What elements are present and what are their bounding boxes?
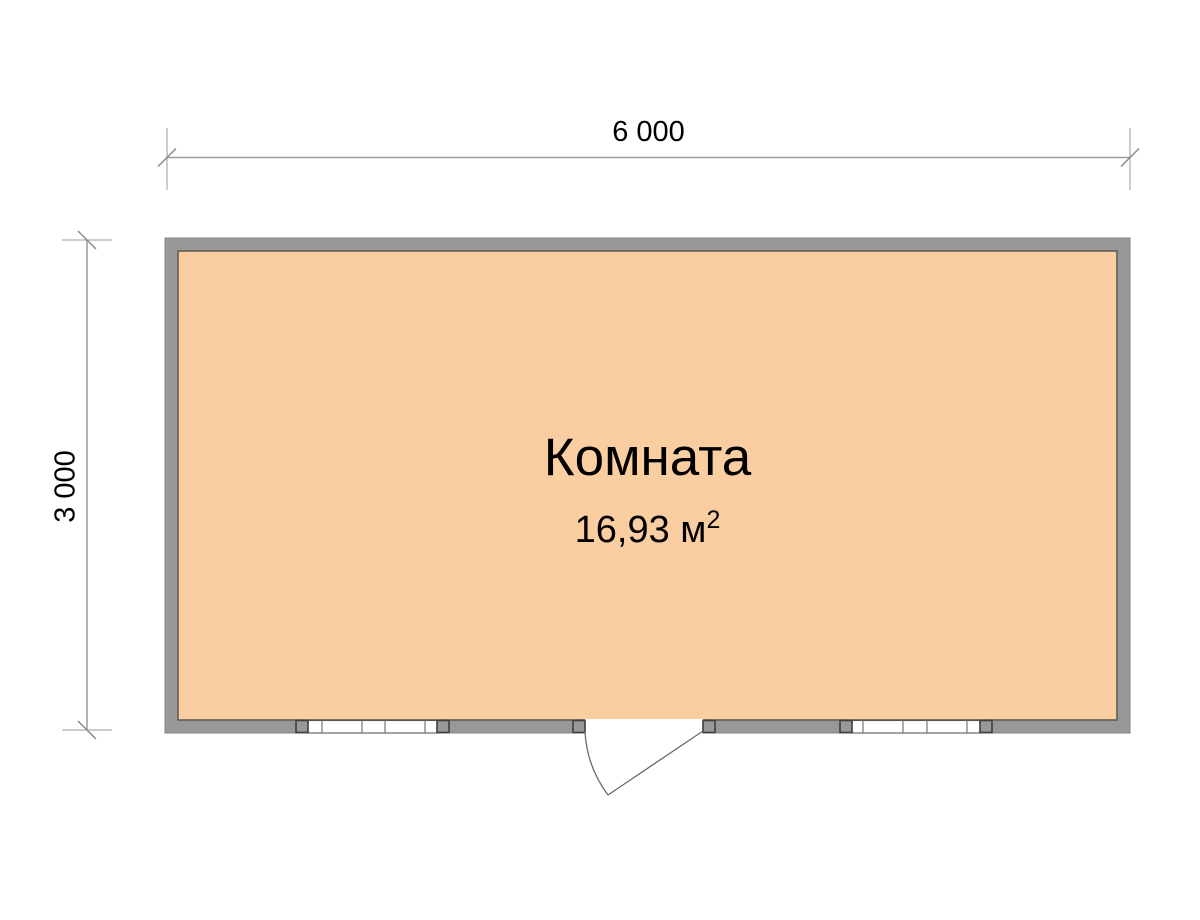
door-leaf (608, 731, 703, 795)
door-jamb (573, 721, 585, 733)
window-left (296, 721, 449, 734)
window-right (840, 721, 992, 734)
floor-plan: 6 000 3 000 Комната 16,93 м2 (0, 0, 1200, 920)
door-opening (585, 719, 703, 734)
height-dimension-label: 3 000 (50, 389, 83, 585)
width-dimension-label: 6 000 (167, 116, 1130, 149)
room-name-label: Комната (178, 429, 1117, 487)
window-jamb (840, 721, 852, 733)
window-glass (852, 721, 980, 734)
area-value: 16,93 м (575, 509, 707, 551)
window-jamb (296, 721, 308, 733)
entry-door (573, 719, 715, 795)
door-jamb (703, 721, 715, 733)
room-area-label: 16,93 м2 (178, 510, 1117, 552)
window-jamb (437, 721, 449, 733)
door-swing-arc (585, 731, 608, 795)
window-jamb (980, 721, 992, 733)
area-exponent: 2 (706, 506, 720, 534)
window-glass (308, 721, 437, 734)
